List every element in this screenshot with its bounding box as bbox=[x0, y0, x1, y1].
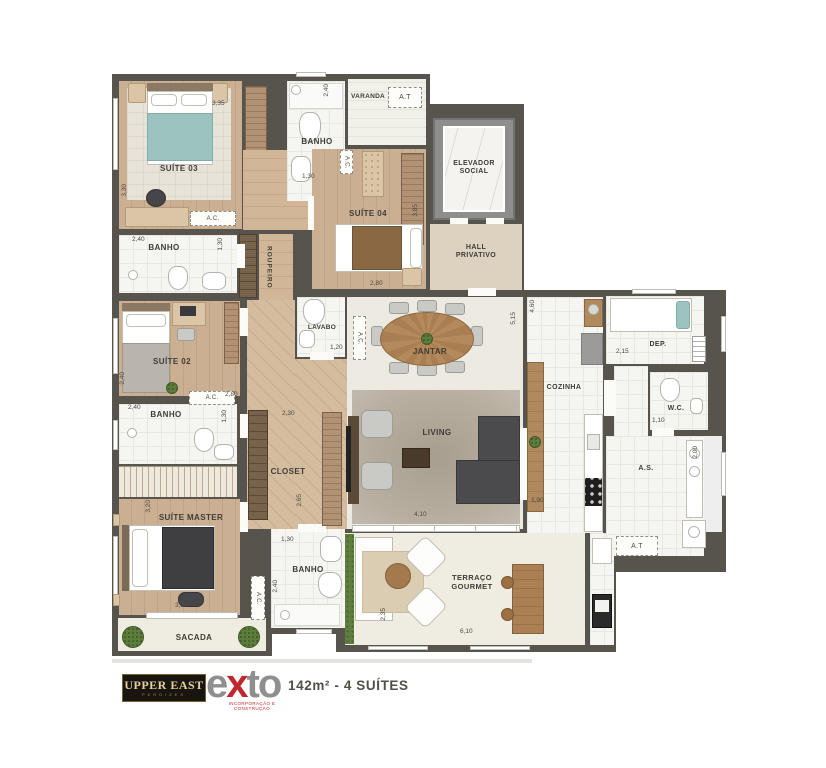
plant-icon bbox=[238, 626, 260, 648]
toilet-icon bbox=[168, 266, 188, 290]
pillow-icon bbox=[676, 301, 690, 329]
toilet-icon bbox=[303, 299, 325, 325]
shower-icon bbox=[280, 610, 290, 620]
ac-box: A.C. bbox=[340, 150, 353, 174]
room-label-jantar: JANTAR bbox=[405, 347, 455, 356]
dim-terraco-height: 2,35 bbox=[381, 608, 388, 621]
chair-icon bbox=[417, 300, 437, 312]
shower-icon bbox=[127, 428, 137, 438]
closet-hangers bbox=[119, 466, 237, 497]
room-label-as: A.S. bbox=[630, 465, 662, 473]
sliding-glass-doors bbox=[352, 525, 520, 532]
plant-icon bbox=[529, 436, 541, 448]
dim-suite02-width: 2,80 bbox=[225, 392, 238, 399]
desk-chair-icon bbox=[177, 328, 195, 341]
room-label-hall: HALL PRIVATIVO bbox=[432, 242, 520, 262]
room-label-elevador: ELEVADOR SOCIAL bbox=[443, 158, 505, 178]
duct-shaft bbox=[704, 436, 722, 532]
dim-banho04-width: 1,30 bbox=[302, 174, 315, 181]
room-label-suite04: SUÍTE 04 bbox=[336, 209, 400, 218]
nightstand-icon bbox=[402, 268, 422, 286]
ac-box: A.C. bbox=[190, 211, 236, 226]
plant-icon bbox=[166, 382, 178, 394]
vertical-garden bbox=[345, 534, 354, 644]
dim-banho-master-width: 1,30 bbox=[281, 537, 294, 544]
dim-suite03-width: 3,35 bbox=[212, 101, 225, 108]
bed-blanket bbox=[147, 113, 213, 161]
pillow-icon bbox=[126, 314, 166, 327]
dim-living-width: 4,10 bbox=[414, 512, 427, 519]
room-label-banho-master: BANHO bbox=[282, 565, 334, 574]
exto-letter-e: e bbox=[206, 662, 226, 706]
washer-door-icon bbox=[688, 526, 700, 538]
armchair-icon bbox=[361, 410, 393, 438]
dim-banho03-height: 1,30 bbox=[218, 238, 225, 251]
bed-blanket bbox=[122, 343, 170, 393]
plant-icon bbox=[421, 333, 433, 345]
window bbox=[113, 536, 118, 600]
dishwasher-icon bbox=[592, 538, 612, 564]
dim-as-height: 2,00 bbox=[693, 446, 700, 459]
exto-letter-x: x bbox=[226, 662, 246, 706]
cooktop-icon bbox=[585, 478, 602, 506]
hall-line2: PRIVATIVO bbox=[456, 252, 496, 260]
door-opening bbox=[237, 244, 245, 268]
room-label-banho-suite02: BANHO bbox=[140, 410, 192, 419]
plant-icon bbox=[122, 626, 144, 648]
toilet-icon bbox=[660, 378, 680, 402]
room-label-terraco: TERRAÇO GOURMET bbox=[440, 573, 504, 593]
room-label-suite03: SUÍTE 03 bbox=[146, 164, 212, 173]
dim-banho04-height: 2,40 bbox=[324, 84, 331, 97]
sink-icon bbox=[202, 272, 226, 290]
dim-master-width: 3,30 bbox=[175, 603, 188, 610]
pillow-icon bbox=[132, 529, 148, 587]
window bbox=[721, 452, 726, 496]
window bbox=[721, 316, 726, 352]
room-label-roupeiro: ROUPEIRO bbox=[265, 238, 272, 296]
sofa-icon bbox=[456, 460, 520, 504]
window bbox=[470, 646, 530, 650]
coffee-table-icon bbox=[402, 448, 430, 468]
brand-logo-upper-east: UPPER EAST PERDIZES bbox=[122, 674, 206, 702]
window bbox=[113, 420, 118, 450]
chair-icon bbox=[389, 362, 409, 374]
kitchen-sink-counter bbox=[584, 414, 603, 532]
dim-banho-master-height: 2,40 bbox=[273, 580, 280, 593]
room-label-lavabo: LAVABO bbox=[300, 324, 344, 331]
desk-chair-icon bbox=[146, 189, 166, 207]
dim-suite02-height: 2,40 bbox=[120, 372, 127, 385]
door-opening bbox=[310, 352, 334, 360]
bed-icon bbox=[147, 83, 213, 91]
window bbox=[296, 629, 332, 634]
room-label-living: LIVING bbox=[412, 428, 462, 437]
door-opening bbox=[240, 308, 248, 336]
door-opening bbox=[450, 218, 468, 224]
chair-icon bbox=[445, 303, 465, 315]
window bbox=[368, 646, 428, 650]
sink-icon bbox=[299, 330, 315, 348]
dim-dep-width: 2,15 bbox=[616, 349, 629, 356]
chair-icon bbox=[389, 302, 409, 314]
sink-icon bbox=[587, 434, 600, 450]
door-opening bbox=[240, 502, 248, 532]
ac-box: A.C. bbox=[353, 316, 366, 360]
gourmet-table-icon bbox=[512, 564, 544, 634]
ac-box: A.C. bbox=[251, 576, 265, 620]
exto-letters-to: to bbox=[247, 662, 281, 706]
door-opening bbox=[486, 218, 504, 224]
pillow-icon bbox=[410, 228, 422, 268]
door-opening bbox=[308, 196, 314, 230]
elevador-line1: ELEVADOR bbox=[453, 160, 495, 168]
bed-blanket bbox=[352, 226, 402, 270]
room-label-wc: W.C. bbox=[658, 405, 694, 413]
brand-upper-east-sub: PERDIZES bbox=[142, 693, 186, 697]
hall-line1: HALL bbox=[466, 244, 486, 252]
bed-icon bbox=[122, 303, 170, 311]
room-label-cozinha: COZINHA bbox=[538, 384, 590, 392]
dim-lavabo-width: 1,20 bbox=[330, 345, 343, 352]
door-opening bbox=[468, 288, 496, 296]
shelf-icon bbox=[692, 336, 706, 362]
sconce-icon bbox=[113, 594, 120, 606]
stool-icon bbox=[501, 608, 514, 621]
pillow-icon bbox=[181, 94, 207, 106]
shower-icon bbox=[291, 85, 301, 95]
round-table-icon bbox=[385, 563, 411, 589]
cooktop-icon bbox=[588, 304, 599, 315]
desk-icon bbox=[125, 207, 189, 227]
laundry-basin-icon bbox=[689, 466, 700, 477]
dim-corredor-width: 2,30 bbox=[282, 411, 295, 418]
shower-icon bbox=[128, 270, 138, 280]
room-label-dep: DEP. bbox=[640, 341, 676, 349]
bed-icon bbox=[122, 525, 129, 591]
closet-shelves bbox=[248, 410, 268, 520]
window bbox=[113, 318, 118, 374]
room-label-suite02: SUÍTE 02 bbox=[140, 357, 204, 366]
at-box: A.T bbox=[616, 536, 658, 556]
oven-door bbox=[595, 600, 609, 612]
door-opening bbox=[604, 380, 616, 416]
dim-wc-width: 1,10 bbox=[652, 418, 665, 425]
room-label-banho-suite03: BANHO bbox=[138, 243, 190, 252]
dim-banho03-width: 2,40 bbox=[132, 237, 145, 244]
dim-suite04-width: 2,80 bbox=[370, 281, 383, 288]
window bbox=[296, 72, 326, 77]
sconce-icon bbox=[113, 514, 120, 526]
brand-upper-east-title: UPPER EAST bbox=[124, 679, 203, 691]
fridge-icon bbox=[581, 333, 603, 365]
window bbox=[113, 98, 118, 170]
armchair-icon bbox=[361, 462, 393, 490]
door-opening bbox=[652, 428, 674, 436]
dim-terraco-width: 6,10 bbox=[460, 629, 473, 636]
dim-suite04-height: 3,85 bbox=[413, 204, 420, 217]
wardrobe-icon bbox=[322, 412, 342, 526]
elevador-line2: SOCIAL bbox=[460, 168, 489, 176]
terraco-line2: GOURMET bbox=[451, 583, 492, 592]
bed-blanket bbox=[162, 527, 214, 589]
brand-logo-exto: exto bbox=[206, 664, 298, 704]
room-label-banho-suite04: BANHO bbox=[291, 137, 343, 146]
room-label-suite-master: SUÍTE MASTER bbox=[143, 513, 239, 522]
corridor-servico bbox=[614, 366, 648, 436]
room-label-closet: CLOSET bbox=[258, 467, 318, 476]
dim-suite03-height: 3,30 bbox=[122, 184, 129, 197]
pillow-icon bbox=[151, 94, 177, 106]
floorplan-canvas: A.C. A.C. A.C. A.C. A.C. A.T A.T SUÍTE 0… bbox=[0, 0, 826, 768]
sink-icon bbox=[214, 444, 234, 460]
brand-exto-tagline: INCORPORAÇÃO E CONSTRUÇÃO bbox=[210, 702, 294, 711]
nightstand-icon bbox=[128, 83, 146, 103]
divider-line bbox=[112, 659, 532, 663]
dim-jantar-height: 5,15 bbox=[511, 312, 518, 325]
sliding-door bbox=[146, 612, 238, 619]
dim-cozinha-height: 4,60 bbox=[530, 300, 537, 313]
dim-banho02-height: 1,30 bbox=[222, 410, 229, 423]
wardrobe-icon bbox=[224, 302, 239, 364]
toilet-icon bbox=[194, 428, 214, 452]
dim-master-height: 3,20 bbox=[146, 500, 153, 513]
room-label-sacada: SACADA bbox=[166, 633, 222, 642]
window bbox=[632, 289, 676, 294]
toilet-icon bbox=[318, 572, 342, 598]
bench-icon bbox=[362, 151, 384, 197]
at-box: A.T bbox=[388, 87, 422, 108]
sink-icon bbox=[320, 536, 342, 562]
plan-caption: 142m² - 4 SUÍTES bbox=[288, 678, 409, 693]
dim-cozinha-width: 1,90 bbox=[531, 498, 544, 505]
dim-banho02-width: 2,40 bbox=[128, 405, 141, 412]
dim-closet-height: 2,65 bbox=[297, 494, 304, 507]
door-opening bbox=[240, 414, 248, 438]
room-label-varanda: VARANDA bbox=[349, 93, 387, 100]
tv-icon bbox=[346, 426, 351, 492]
laptop-icon bbox=[180, 306, 196, 316]
